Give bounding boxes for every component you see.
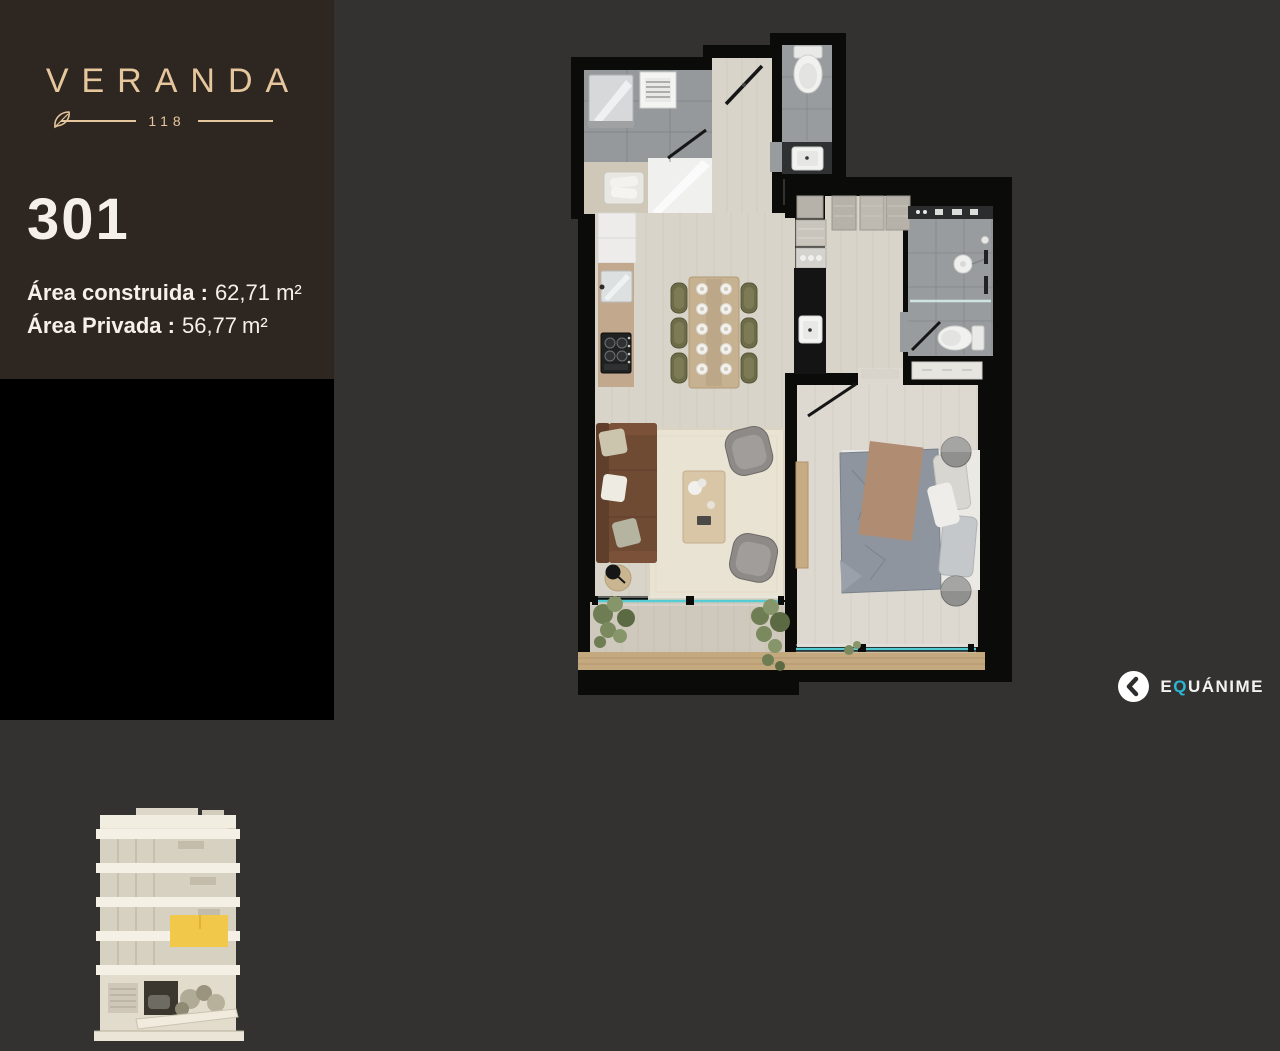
throw-blanket: [858, 441, 923, 541]
area-built-value: 62,71 m²: [215, 280, 302, 305]
building-elevation-image: [86, 803, 250, 1051]
vanity-2: [908, 206, 993, 219]
presentation-slide: { "branding": { "logo_text": "VERANDA", …: [0, 0, 1280, 720]
coffee-table: [683, 471, 725, 543]
dining-set: [671, 277, 757, 388]
area-private-label: Área Privada :: [27, 313, 175, 338]
bar-counter: [794, 268, 826, 374]
kitchen-run: [598, 213, 636, 387]
entry-bench: [861, 369, 899, 379]
publisher-name-accent: Q: [1173, 677, 1188, 696]
toilet-2: [938, 326, 984, 350]
area-info: Área construida :62,71 m² Área Privada :…: [27, 276, 302, 342]
toilet-1: [794, 46, 822, 93]
publisher-logo: EQUÁNIME: [1118, 671, 1264, 702]
divider-line: [198, 120, 273, 122]
laundry-basket: [604, 172, 644, 204]
building-panel: [0, 379, 334, 720]
area-built-label: Área construida :: [27, 280, 208, 305]
chevron-left-icon: [1118, 671, 1149, 702]
highlighted-unit: [170, 915, 228, 947]
publisher-name-prefix: E: [1160, 677, 1173, 696]
publisher-name-suffix: UÁNIME: [1188, 677, 1264, 696]
unit-number: 301: [27, 186, 130, 253]
area-private-unit: m²: [242, 313, 268, 338]
vent-appliance: [640, 72, 676, 108]
floor-plan-rendering: [565, 25, 1025, 695]
sofa: [596, 423, 657, 563]
info-panel: VERANDA 118 301 Área construida :62,71 m…: [0, 0, 334, 379]
ottoman: [941, 576, 971, 606]
area-built-line: Área construida :62,71 m²: [27, 276, 302, 309]
ottoman: [941, 437, 971, 467]
leaf-icon: [52, 110, 76, 130]
living-room: [596, 423, 784, 599]
area-private-line: Área Privada :56,77m²: [27, 309, 302, 342]
media-bench: [796, 462, 808, 568]
logo-wordmark: VERANDA: [33, 62, 301, 101]
publisher-name: EQUÁNIME: [1160, 677, 1264, 697]
logo-subline: 118: [61, 113, 273, 129]
logo-number: 118: [148, 113, 185, 129]
side-table-lamp: [605, 565, 631, 592]
washer: [589, 75, 633, 128]
brand-logo: VERANDA 118: [0, 62, 334, 129]
area-private-value: 56,77: [182, 313, 237, 338]
sink-1: [782, 142, 832, 174]
